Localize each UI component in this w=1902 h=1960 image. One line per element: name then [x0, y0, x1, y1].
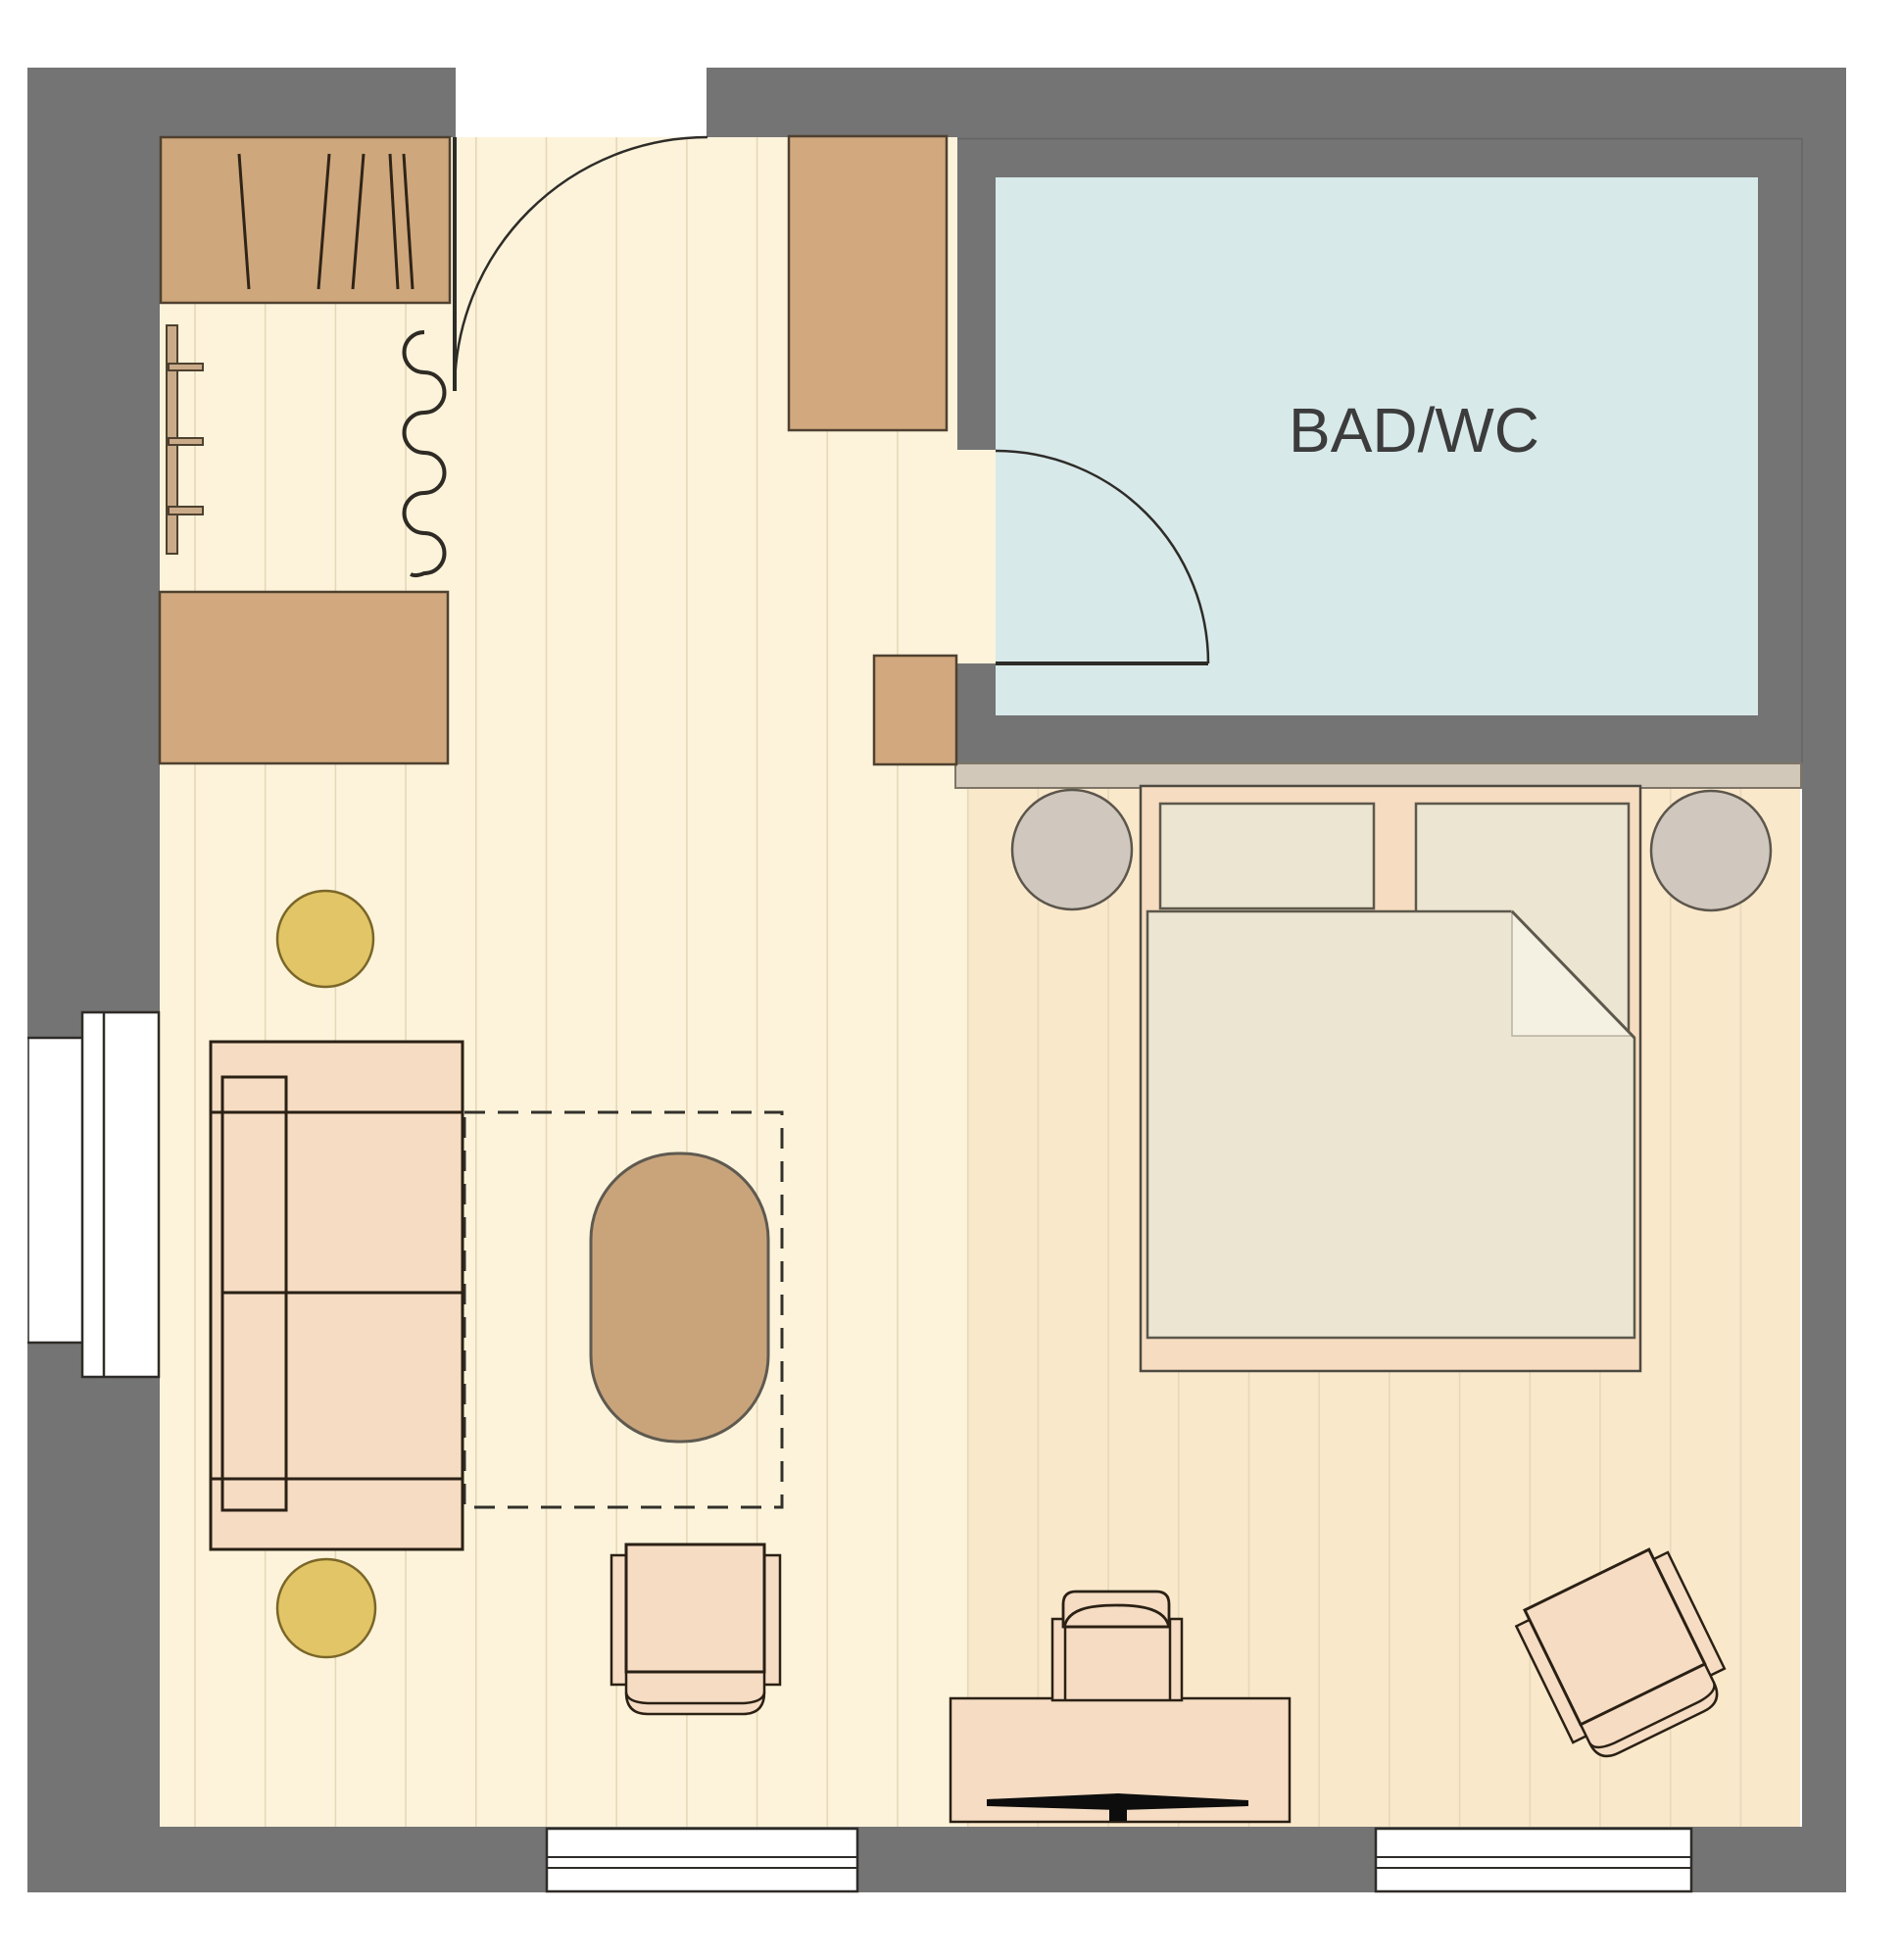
- svg-text:BAD/WC: BAD/WC: [1289, 395, 1539, 465]
